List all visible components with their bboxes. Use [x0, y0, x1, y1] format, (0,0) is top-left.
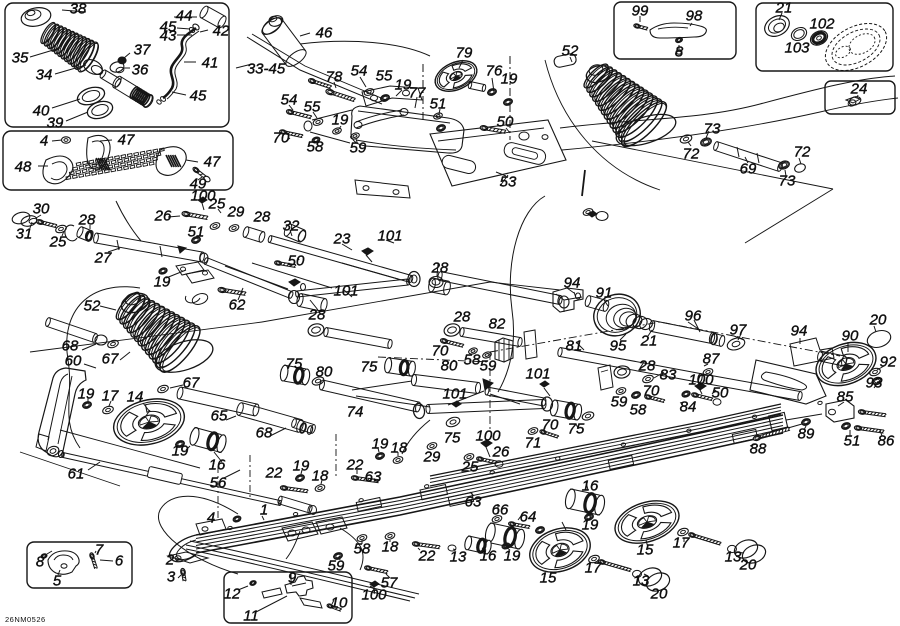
svg-text:70: 70 — [643, 383, 660, 400]
svg-text:5: 5 — [53, 573, 62, 590]
svg-text:36: 36 — [132, 62, 149, 79]
svg-text:63: 63 — [365, 469, 382, 486]
svg-text:28: 28 — [253, 209, 271, 226]
svg-text:26NM0526: 26NM0526 — [5, 615, 46, 624]
svg-text:91: 91 — [596, 285, 613, 302]
svg-text:20: 20 — [739, 557, 757, 574]
svg-text:43: 43 — [160, 28, 177, 45]
svg-text:24: 24 — [850, 81, 868, 98]
svg-text:96: 96 — [685, 308, 702, 325]
svg-text:29: 29 — [423, 449, 441, 466]
svg-text:25: 25 — [49, 234, 67, 251]
svg-text:22: 22 — [265, 465, 283, 482]
svg-text:100: 100 — [688, 372, 714, 389]
svg-text:101: 101 — [525, 366, 550, 383]
svg-text:28: 28 — [308, 307, 326, 324]
svg-text:8: 8 — [675, 44, 684, 61]
svg-text:74: 74 — [347, 404, 364, 421]
svg-text:83: 83 — [660, 367, 677, 384]
svg-text:45: 45 — [190, 88, 207, 105]
svg-text:47: 47 — [204, 154, 221, 171]
svg-text:18: 18 — [382, 539, 399, 556]
svg-text:58: 58 — [307, 139, 324, 156]
svg-text:71: 71 — [525, 435, 542, 452]
svg-text:53: 53 — [500, 174, 517, 191]
svg-text:59: 59 — [480, 358, 497, 375]
svg-text:98: 98 — [686, 8, 703, 25]
svg-text:62: 62 — [229, 297, 246, 314]
svg-text:26: 26 — [492, 444, 510, 461]
svg-text:26: 26 — [154, 208, 172, 225]
svg-text:67: 67 — [183, 375, 200, 392]
svg-text:92: 92 — [880, 354, 897, 371]
svg-text:15: 15 — [637, 542, 654, 559]
svg-text:68: 68 — [256, 425, 273, 442]
svg-text:58: 58 — [464, 352, 481, 369]
svg-text:46: 46 — [316, 25, 333, 42]
svg-text:70: 70 — [542, 417, 559, 434]
svg-text:30: 30 — [33, 201, 50, 218]
svg-text:54: 54 — [351, 63, 368, 80]
svg-text:94: 94 — [564, 275, 581, 292]
svg-text:11: 11 — [243, 608, 259, 625]
svg-text:17: 17 — [585, 560, 602, 577]
svg-text:85: 85 — [837, 389, 854, 406]
svg-text:16: 16 — [480, 548, 497, 565]
svg-text:89: 89 — [798, 426, 815, 443]
svg-text:17: 17 — [102, 388, 119, 405]
svg-text:70: 70 — [273, 130, 290, 147]
svg-text:14: 14 — [127, 389, 144, 406]
svg-text:18: 18 — [391, 440, 408, 457]
svg-text:39: 39 — [47, 115, 64, 132]
svg-text:72: 72 — [683, 146, 700, 163]
svg-text:28: 28 — [431, 260, 449, 277]
svg-text:48: 48 — [15, 159, 32, 176]
svg-text:84: 84 — [680, 399, 697, 416]
svg-text:19: 19 — [582, 517, 599, 534]
svg-text:80: 80 — [316, 364, 333, 381]
svg-text:25: 25 — [461, 459, 479, 476]
svg-text:87: 87 — [703, 351, 720, 368]
svg-text:19: 19 — [78, 386, 95, 403]
svg-text:77: 77 — [409, 85, 426, 102]
svg-text:4: 4 — [40, 133, 48, 150]
svg-text:9: 9 — [288, 570, 297, 587]
svg-text:81: 81 — [566, 338, 583, 355]
svg-text:60: 60 — [65, 353, 82, 370]
svg-text:103: 103 — [784, 40, 810, 57]
svg-text:18: 18 — [312, 468, 329, 485]
svg-text:12: 12 — [224, 586, 241, 603]
svg-text:23: 23 — [333, 231, 351, 248]
svg-text:66: 66 — [492, 502, 509, 519]
svg-text:80: 80 — [441, 358, 458, 375]
svg-text:101: 101 — [333, 283, 358, 300]
svg-text:55: 55 — [304, 99, 321, 116]
svg-text:72: 72 — [794, 144, 811, 161]
svg-text:93: 93 — [866, 375, 883, 392]
svg-text:65: 65 — [211, 408, 228, 425]
svg-text:31: 31 — [16, 226, 33, 243]
svg-text:35: 35 — [12, 50, 29, 67]
svg-text:32: 32 — [283, 218, 300, 235]
svg-text:52: 52 — [84, 298, 101, 315]
svg-text:21: 21 — [775, 0, 793, 17]
svg-text:59: 59 — [328, 558, 345, 575]
svg-text:2: 2 — [165, 552, 175, 569]
svg-text:20: 20 — [869, 312, 887, 329]
svg-text:59: 59 — [350, 140, 367, 157]
svg-text:54: 54 — [281, 92, 298, 109]
svg-text:13: 13 — [450, 549, 467, 566]
svg-text:101: 101 — [442, 386, 467, 403]
svg-text:75: 75 — [286, 356, 303, 373]
svg-text:70: 70 — [432, 343, 449, 360]
svg-text:58: 58 — [630, 402, 647, 419]
svg-text:50: 50 — [712, 385, 729, 402]
svg-text:16: 16 — [582, 478, 599, 495]
svg-text:51: 51 — [430, 96, 447, 113]
svg-text:19: 19 — [372, 436, 389, 453]
svg-text:75: 75 — [568, 421, 585, 438]
svg-text:63: 63 — [465, 494, 482, 511]
svg-text:69: 69 — [740, 161, 757, 178]
svg-text:86: 86 — [878, 433, 895, 450]
svg-text:47: 47 — [118, 132, 135, 149]
svg-text:102: 102 — [809, 16, 835, 33]
svg-text:21: 21 — [640, 333, 658, 350]
svg-text:42: 42 — [213, 23, 230, 40]
svg-text:1: 1 — [260, 502, 268, 519]
svg-text:15: 15 — [540, 570, 557, 587]
svg-text:20: 20 — [650, 586, 668, 603]
svg-text:19: 19 — [332, 112, 349, 129]
svg-text:101: 101 — [377, 228, 402, 245]
svg-text:73: 73 — [779, 173, 796, 190]
svg-text:52: 52 — [562, 43, 579, 60]
svg-text:3: 3 — [167, 569, 176, 586]
svg-text:95: 95 — [610, 338, 627, 355]
svg-text:79: 79 — [456, 45, 473, 62]
svg-text:55: 55 — [376, 68, 393, 85]
svg-text:94: 94 — [791, 323, 808, 340]
svg-text:82: 82 — [489, 316, 506, 333]
svg-text:7: 7 — [95, 542, 104, 559]
svg-text:33-45: 33-45 — [247, 61, 286, 78]
svg-text:90: 90 — [842, 328, 859, 345]
svg-text:78: 78 — [326, 69, 343, 86]
svg-text:41: 41 — [202, 55, 219, 72]
svg-text:8: 8 — [36, 554, 45, 571]
svg-text:88: 88 — [750, 441, 767, 458]
svg-text:97: 97 — [730, 322, 747, 339]
svg-text:75: 75 — [444, 430, 461, 447]
svg-text:64: 64 — [520, 509, 537, 526]
svg-text:27: 27 — [94, 250, 112, 267]
svg-text:19: 19 — [501, 71, 518, 88]
svg-text:61: 61 — [68, 466, 85, 483]
svg-text:50: 50 — [288, 253, 305, 270]
svg-text:100: 100 — [361, 587, 387, 604]
svg-text:13: 13 — [633, 573, 650, 590]
svg-text:58: 58 — [354, 541, 371, 558]
svg-text:19: 19 — [293, 458, 310, 475]
svg-text:44: 44 — [176, 8, 193, 25]
svg-text:16: 16 — [209, 457, 226, 474]
svg-text:73: 73 — [704, 121, 721, 138]
svg-text:4: 4 — [207, 510, 215, 527]
svg-text:6: 6 — [115, 553, 124, 570]
svg-text:10: 10 — [331, 595, 348, 612]
svg-text:56: 56 — [210, 475, 227, 492]
svg-text:28: 28 — [78, 212, 96, 229]
svg-text:17: 17 — [673, 535, 690, 552]
svg-text:28: 28 — [638, 358, 656, 375]
svg-text:19: 19 — [154, 274, 171, 291]
svg-text:19: 19 — [504, 548, 521, 565]
svg-text:75: 75 — [361, 359, 378, 376]
svg-text:28: 28 — [453, 309, 471, 326]
svg-text:50: 50 — [497, 114, 514, 131]
svg-text:22: 22 — [346, 457, 364, 474]
svg-text:100: 100 — [475, 428, 501, 445]
svg-text:29: 29 — [227, 204, 245, 221]
svg-text:37: 37 — [134, 42, 151, 59]
svg-text:51: 51 — [188, 224, 205, 241]
svg-text:99: 99 — [632, 3, 649, 20]
svg-text:67: 67 — [102, 351, 119, 368]
svg-text:51: 51 — [844, 433, 861, 450]
svg-text:34: 34 — [36, 67, 53, 84]
svg-text:22: 22 — [418, 548, 436, 565]
svg-text:19: 19 — [172, 443, 189, 460]
svg-text:38: 38 — [70, 1, 87, 18]
svg-text:25: 25 — [208, 196, 226, 213]
svg-text:59: 59 — [611, 394, 628, 411]
